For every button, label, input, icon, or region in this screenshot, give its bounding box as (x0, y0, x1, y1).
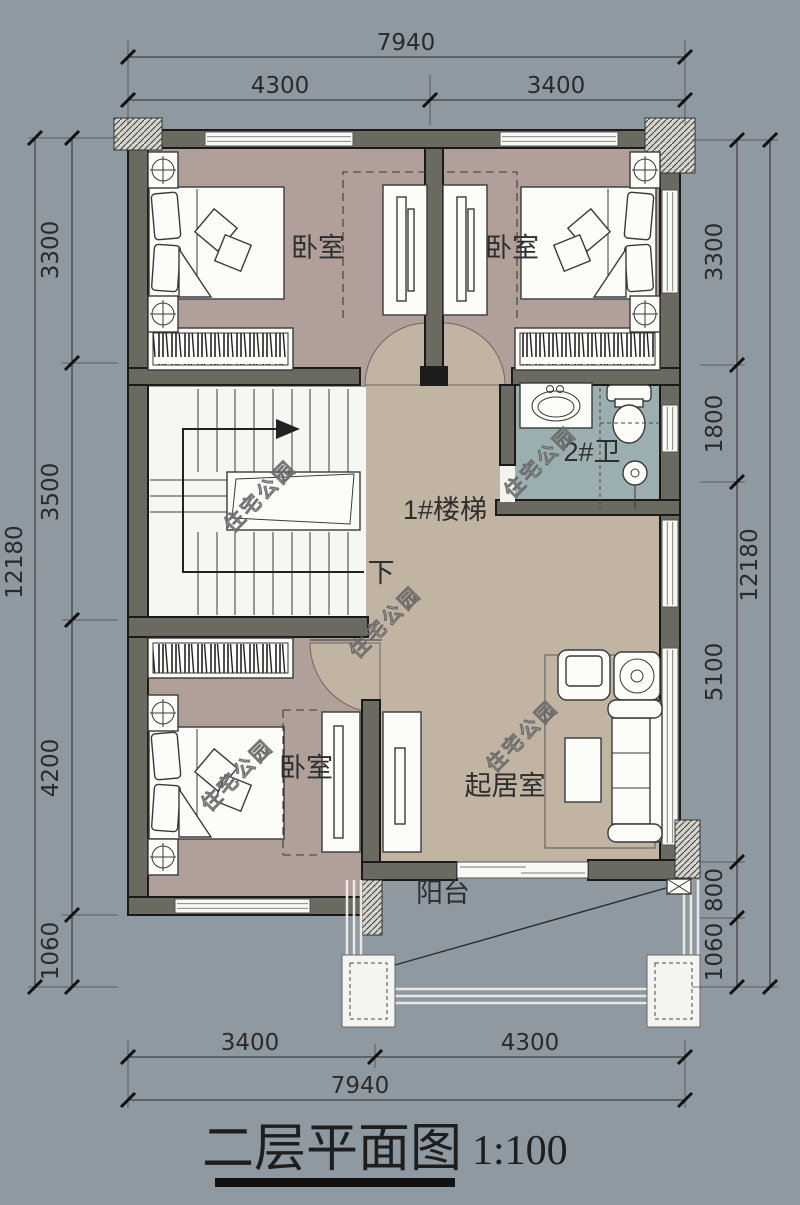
balcony-sliding-door (457, 862, 588, 878)
sofa (608, 700, 662, 842)
dim-left-seg2: 3500 (38, 463, 64, 522)
nightstand (148, 695, 178, 731)
balcony-column-right (647, 955, 700, 1027)
nightstand (148, 152, 178, 188)
floor-plan-canvas: 卧室 卧室 卧室 1#楼梯 下 2#卫 起居室 阳台 住宅公园 住宅公园 住宅公… (0, 0, 800, 1205)
dim-right-total: 12180 (737, 528, 763, 601)
window-top-left (205, 132, 353, 146)
dimension-left: 3300 3500 4200 1060 12180 (2, 131, 118, 994)
nightstand (630, 296, 660, 332)
dim-top-seg1: 4300 (251, 73, 310, 99)
wardrobe-left (383, 185, 427, 315)
dim-left-seg3: 4200 (38, 739, 64, 798)
window-right-living (662, 648, 678, 845)
wardrobe-right (443, 185, 487, 315)
dim-bottom-seg1: 3400 (221, 1030, 280, 1056)
bed-top-right (521, 187, 656, 299)
floor-plan-page: 卧室 卧室 卧室 1#楼梯 下 2#卫 起居室 阳台 住宅公园 住宅公园 住宅公… (0, 0, 800, 1205)
label-stair: 1#楼梯 (403, 495, 487, 525)
nightstand (630, 152, 660, 188)
nightstand (148, 296, 178, 332)
floor-drain (667, 879, 691, 894)
dim-bottom-seg2: 4300 (501, 1030, 560, 1056)
title-block: 二层平面图 1:100 (202, 1121, 568, 1187)
dim-right-seg3: 5100 (702, 643, 728, 702)
dimension-right: 3300 1800 5100 800 1060 12180 (692, 133, 778, 994)
bed-top-left (149, 187, 284, 299)
dimension-top: 7940 4300 3400 (121, 30, 692, 125)
label-stair-down: 下 (368, 558, 395, 588)
plan-scale: 1:100 (472, 1128, 568, 1174)
dim-left-seg1: 3300 (38, 221, 64, 280)
window-bottom-bedroom (175, 899, 310, 913)
bookshelf-bedroom-bottom (148, 638, 293, 678)
side-table (614, 652, 660, 700)
dim-top-total: 7940 (377, 30, 436, 56)
bookshelf-top-left (148, 328, 293, 370)
nightstand (148, 839, 178, 875)
window-top-right (500, 132, 618, 146)
dim-right-seg4: 800 (702, 868, 728, 912)
balcony (342, 879, 700, 1027)
tv-cabinet-living (383, 712, 421, 852)
label-bedroom-bottom: 卧室 (279, 753, 333, 783)
label-living: 起居室 (465, 771, 546, 801)
label-balcony: 阳台 (416, 878, 470, 908)
dim-right-seg1: 3300 (702, 223, 728, 282)
dim-bottom-total: 7940 (331, 1073, 390, 1099)
dim-right-seg5: 1060 (702, 923, 728, 982)
plan-title: 二层平面图 (202, 1121, 462, 1178)
bookshelf-top-right (515, 328, 660, 370)
label-bedroom-top-left: 卧室 (291, 233, 345, 263)
balcony-column-left (342, 955, 395, 1027)
dim-top-seg2: 3400 (527, 73, 586, 99)
coffee-table (565, 738, 601, 802)
dimension-bottom: 3400 4300 7940 (121, 1030, 692, 1108)
window-right-bedroom (662, 190, 678, 293)
dim-left-total: 12180 (2, 525, 28, 598)
window-right-hall (662, 520, 678, 607)
label-bedroom-top-right: 卧室 (485, 233, 539, 263)
dim-right-seg2: 1800 (702, 395, 728, 454)
title-underline (215, 1178, 455, 1187)
window-right-bath (662, 405, 678, 452)
armchair (558, 650, 610, 700)
dim-left-seg4: 1060 (38, 922, 64, 981)
